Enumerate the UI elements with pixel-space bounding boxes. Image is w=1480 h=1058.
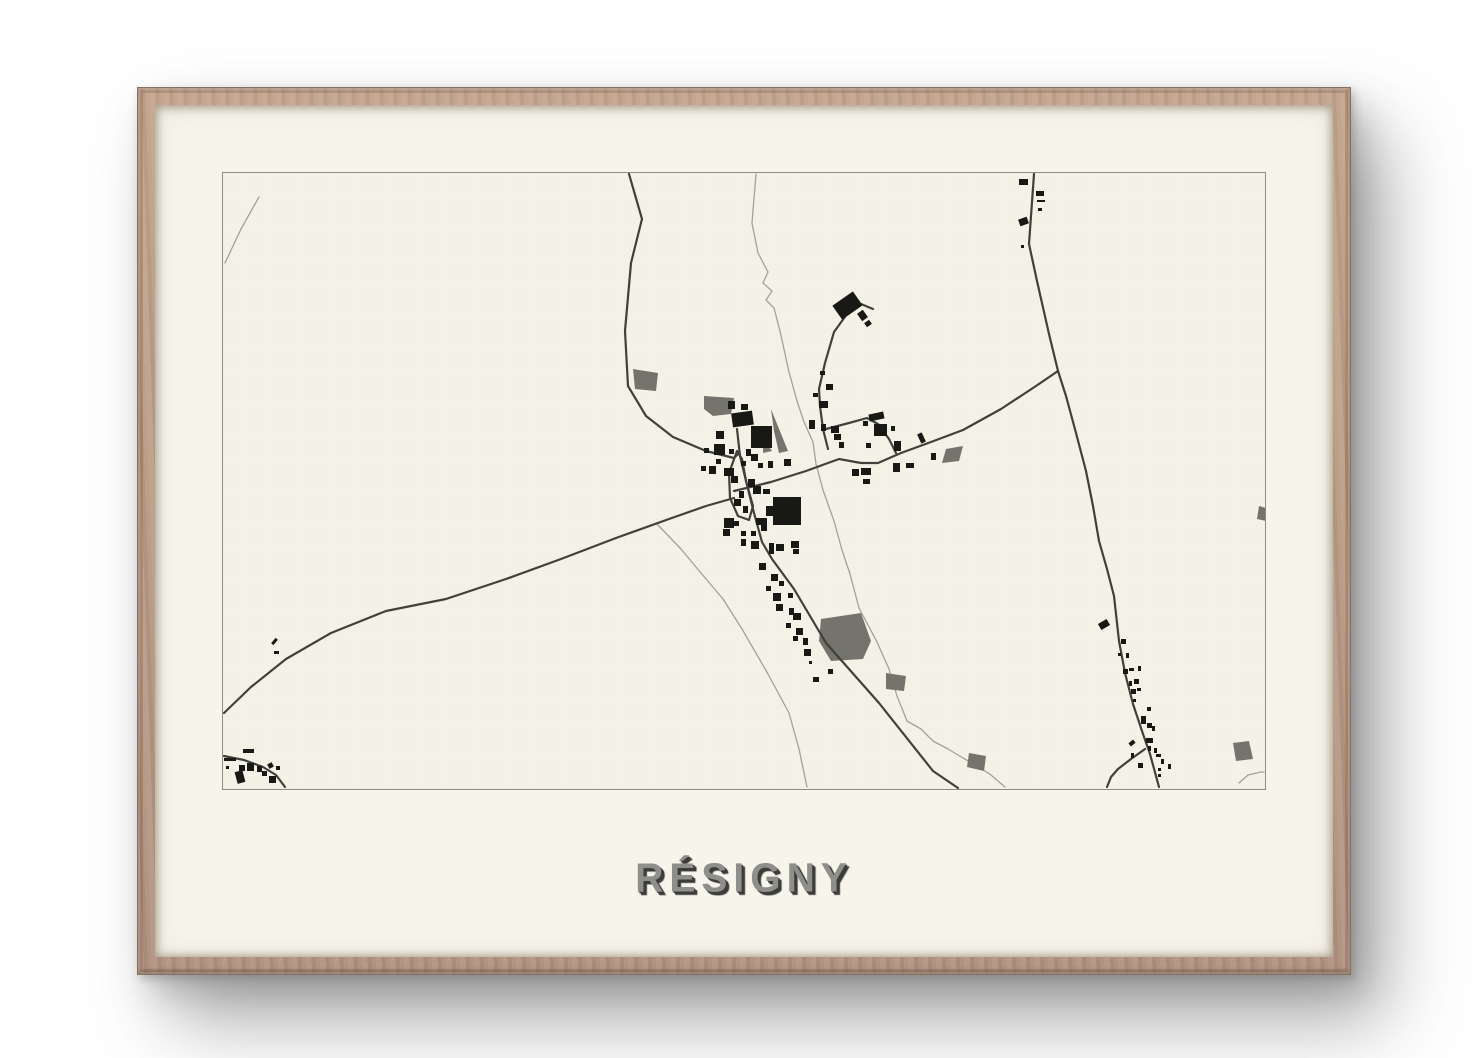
building — [1038, 208, 1042, 211]
building — [776, 604, 783, 611]
building — [741, 461, 746, 466]
building — [1123, 669, 1128, 674]
building — [776, 544, 784, 551]
building — [906, 463, 914, 468]
building — [803, 638, 808, 645]
area-pond-small — [886, 673, 906, 691]
building — [724, 518, 734, 528]
building — [831, 426, 839, 433]
building — [779, 581, 784, 586]
building — [813, 677, 819, 682]
building — [1148, 746, 1151, 751]
building — [813, 393, 818, 397]
building — [1129, 668, 1134, 671]
building — [1154, 748, 1157, 753]
building — [1138, 763, 1143, 768]
building — [1146, 738, 1153, 743]
building — [267, 762, 274, 769]
building — [239, 765, 245, 771]
building — [1161, 759, 1164, 764]
building — [716, 459, 721, 464]
area-pond-bottom — [967, 753, 986, 771]
building — [796, 628, 803, 635]
building — [1121, 639, 1126, 644]
map-svg — [223, 173, 1265, 789]
area-green-strip — [771, 409, 788, 453]
picture-frame: RÉSIGNY — [137, 87, 1351, 975]
building — [832, 291, 862, 319]
building — [771, 574, 778, 581]
building — [751, 531, 756, 536]
building — [791, 541, 799, 548]
building — [1129, 681, 1132, 686]
building — [1152, 726, 1155, 731]
building — [834, 434, 841, 440]
building — [763, 489, 770, 494]
building — [751, 426, 772, 448]
building — [1036, 191, 1044, 196]
building — [857, 310, 868, 321]
building — [809, 420, 815, 429]
building — [226, 766, 229, 769]
building — [276, 766, 280, 770]
minor-line-southeast-corner-line — [1239, 772, 1264, 783]
building — [852, 469, 859, 476]
minor-line-parcel-line-southwest — [656, 523, 807, 787]
building — [1131, 689, 1136, 694]
minor-line-stream — [752, 174, 1005, 787]
building — [793, 613, 801, 620]
building — [820, 371, 825, 375]
area-pond-large — [819, 613, 871, 661]
building — [709, 466, 716, 474]
area-green-northwest — [633, 369, 658, 391]
building — [766, 506, 774, 516]
building — [1126, 653, 1129, 658]
building — [773, 593, 781, 601]
road-northeast-branch — [819, 304, 873, 449]
building — [1018, 217, 1029, 227]
building — [743, 506, 748, 513]
building — [894, 441, 901, 451]
building — [728, 401, 735, 409]
building — [731, 476, 738, 483]
building — [274, 651, 279, 654]
map-panel — [222, 172, 1266, 790]
building — [247, 763, 254, 771]
building — [861, 468, 871, 475]
road-west-road — [224, 498, 734, 713]
building — [746, 449, 751, 456]
building — [826, 384, 833, 390]
building — [864, 320, 872, 328]
area-green-right-edge — [1257, 506, 1265, 521]
building — [714, 444, 725, 455]
building — [739, 491, 744, 498]
building — [759, 563, 766, 570]
building — [766, 586, 771, 591]
building — [1133, 699, 1136, 702]
building — [235, 770, 246, 784]
building — [1141, 716, 1146, 724]
building — [723, 529, 730, 536]
building — [1137, 688, 1141, 691]
building — [1019, 179, 1028, 185]
poster-title: RÉSIGNY — [155, 856, 1333, 902]
building — [734, 499, 741, 506]
building — [863, 479, 870, 484]
area-pond-right — [1233, 741, 1253, 761]
building — [734, 521, 739, 526]
road-northeast-road — [1029, 174, 1159, 787]
building — [1134, 679, 1139, 684]
road-northwest-road — [625, 174, 737, 458]
building — [724, 468, 734, 476]
building — [819, 401, 828, 408]
building — [1156, 754, 1161, 757]
building — [931, 453, 936, 460]
poster-mat: RÉSIGNY — [155, 105, 1333, 957]
minor-line-northwest-corner-line — [225, 197, 259, 263]
building — [891, 426, 895, 431]
building — [1118, 653, 1121, 656]
area-green-east — [942, 446, 963, 463]
building — [863, 421, 868, 426]
building — [758, 463, 763, 468]
building — [1128, 740, 1135, 747]
building — [784, 459, 791, 466]
building — [262, 771, 267, 776]
building — [793, 636, 798, 641]
building — [1138, 666, 1141, 671]
building — [741, 404, 748, 410]
building — [917, 432, 926, 443]
building — [768, 461, 773, 468]
building — [753, 486, 761, 494]
building — [243, 749, 254, 753]
building — [788, 593, 793, 598]
building — [769, 543, 774, 554]
building — [751, 541, 759, 549]
building — [874, 424, 887, 436]
building — [1158, 774, 1161, 777]
road-east-road — [734, 371, 1058, 491]
building — [271, 638, 278, 645]
building — [257, 766, 262, 772]
building — [1168, 764, 1171, 769]
building — [773, 497, 801, 525]
building — [729, 449, 734, 454]
building — [1131, 753, 1134, 758]
building — [1147, 723, 1152, 728]
building — [804, 649, 811, 656]
building — [821, 424, 826, 431]
building — [751, 454, 758, 461]
building — [741, 539, 746, 546]
building — [224, 758, 236, 761]
building — [761, 518, 767, 531]
building — [786, 623, 791, 628]
building — [793, 549, 799, 554]
building — [731, 411, 754, 428]
building — [1147, 707, 1151, 711]
building — [1098, 619, 1110, 630]
building — [1021, 245, 1024, 248]
building — [828, 669, 833, 674]
building — [866, 443, 871, 448]
building — [269, 776, 276, 783]
building — [1158, 768, 1161, 771]
building — [701, 466, 706, 471]
building — [704, 448, 709, 453]
building — [741, 531, 746, 536]
building — [893, 463, 900, 472]
building — [809, 661, 812, 664]
building — [868, 412, 884, 422]
building — [839, 442, 844, 448]
building — [716, 431, 724, 439]
building — [1037, 200, 1045, 202]
building — [748, 479, 755, 487]
